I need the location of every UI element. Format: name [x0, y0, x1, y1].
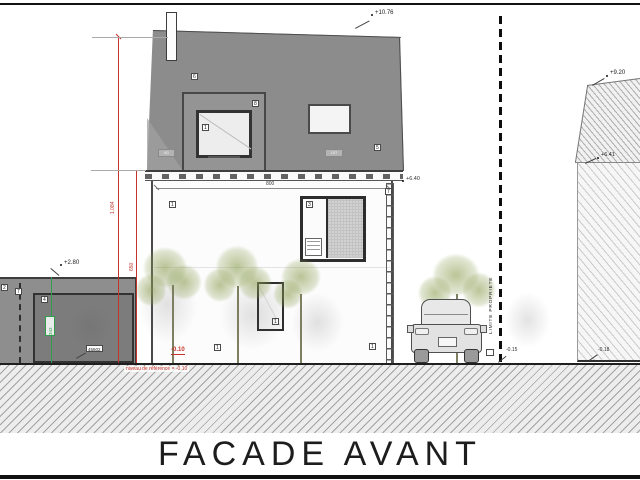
neighbor-eaves-dot: [597, 157, 599, 159]
marker-roof: 6: [191, 73, 198, 80]
marker-dormer: 8: [252, 100, 259, 107]
neighbor-eaves-value: +6.41: [601, 152, 615, 158]
marker-garage-downpipe: 7: [15, 288, 22, 295]
car-wheel-right: [464, 349, 479, 363]
tree-shadow: [60, 295, 120, 360]
ground-at-neighbor-value: -0.18: [598, 347, 609, 353]
car-headlight-left: [415, 328, 429, 335]
title-band: FACADE AVANT: [0, 433, 640, 475]
car-mirror-right: [480, 325, 487, 333]
eaves-level-value: +6.40: [406, 176, 420, 182]
marker-base-right: 1: [369, 343, 376, 350]
facade-drawing-sheet: 6 8 5 1 60 157 800 3 1 1 1 1 7 +6.40 4 2…: [0, 0, 640, 480]
roof-tile-ticks: [145, 174, 403, 179]
car-headlight-right: [464, 328, 478, 335]
marker-dormer-window: 1: [202, 124, 209, 131]
downspout-right: [386, 183, 394, 365]
neighbor-roof: [575, 78, 640, 162]
roof-material-tag-left: 60: [158, 149, 175, 157]
garage-level-leader: [50, 268, 59, 276]
garage-dim-chip: 343: [45, 316, 55, 336]
reference-note: niveau de référence = -0.10: [124, 366, 189, 372]
car-plate: [438, 337, 457, 347]
marker-garage-wall: 2: [1, 284, 8, 291]
car-mirror-left: [407, 325, 414, 333]
dim-width-value: 800: [264, 181, 276, 187]
roof-material-tag-right: 157: [325, 149, 343, 157]
ground-at-limit-value: -0.15: [506, 347, 517, 353]
skylight-window: [308, 104, 351, 134]
sheet-top-border: [0, 3, 640, 5]
car-wheel-left: [414, 349, 429, 363]
garage-dim-value: 343: [48, 327, 53, 335]
tie-line-eaves: [91, 170, 146, 171]
limit-base-chip: [486, 349, 494, 356]
dim-total-value: 1.084: [110, 201, 116, 214]
garage-level-value: +2.80: [64, 260, 79, 266]
property-limit-label: LIMITE PROPRIETE: [489, 277, 494, 334]
marker-wall-upper-left: 1: [169, 201, 176, 208]
dim-line-width: [156, 188, 389, 189]
ridge-level-dot: [371, 14, 373, 16]
eaves-level-dot: [402, 180, 404, 182]
marker-skylight: 5: [374, 144, 381, 151]
marker-garage-door: 4: [41, 296, 48, 303]
garage-level-dot: [60, 264, 62, 266]
tree-shadow: [495, 280, 560, 360]
marker-downpipe-right: 7: [385, 188, 392, 195]
property-line-dashed: [499, 16, 502, 374]
car: [407, 297, 487, 365]
dormer-sill: [208, 156, 240, 158]
ridge-level-value: +10.76: [375, 10, 394, 16]
ground-house-value: -0.10: [171, 347, 185, 355]
tree: [198, 238, 278, 370]
ground-band: [0, 363, 640, 433]
marker-upper-window: 3: [306, 201, 313, 208]
ridge-level-leader: [355, 20, 370, 28]
neighbor-wall: [577, 163, 640, 362]
gutter-cornice: [145, 170, 403, 181]
tie-line-top: [92, 37, 168, 38]
neighbor-ridge-dot: [606, 75, 608, 77]
neighbor-ridge-value: +9.20: [610, 70, 625, 76]
drawing-title: FACADE AVANT: [158, 435, 482, 474]
tree: [268, 252, 336, 370]
upper-window-fixed-pane: [326, 199, 363, 258]
sheet-bottom-border: [0, 475, 640, 479]
